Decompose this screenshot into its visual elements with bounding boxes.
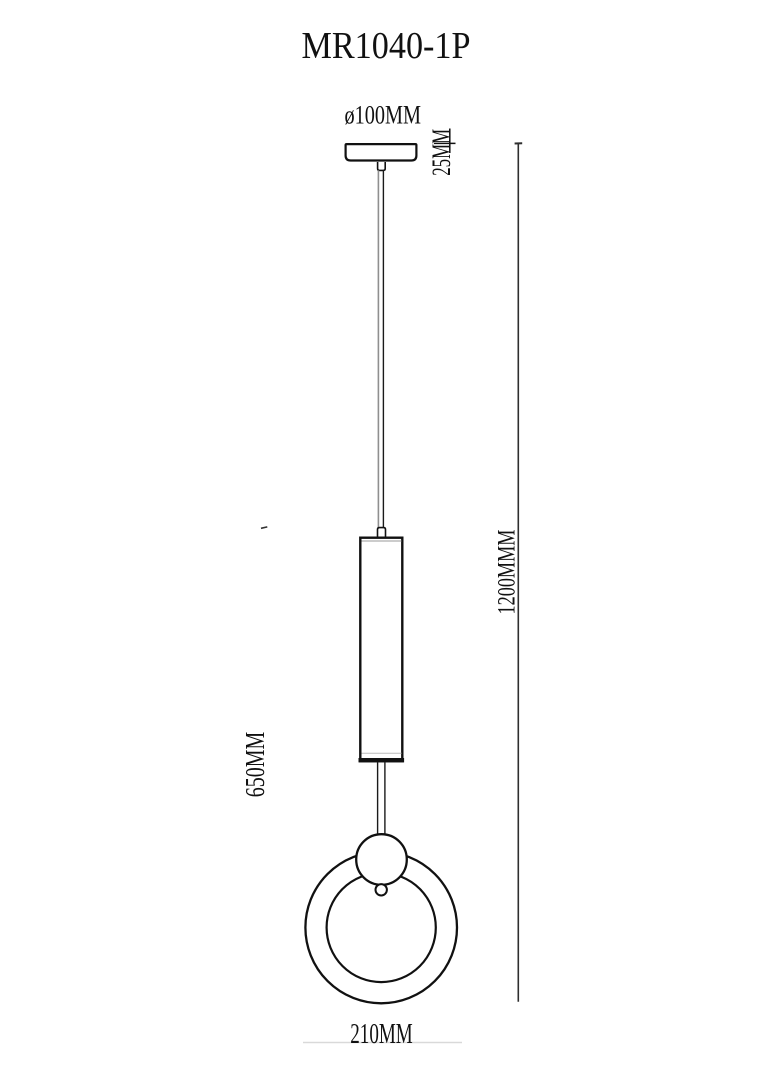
svg-text:210MM: 210MM [350,1019,413,1050]
svg-text:1200MMM: 1200MMM [494,530,521,615]
svg-text:ø100MM: ø100MM [345,100,422,129]
svg-text:650MM: 650MM [240,732,270,798]
svg-text:MR1040-1P: MR1040-1P [302,25,471,67]
svg-text:25MM: 25MM [427,129,456,176]
